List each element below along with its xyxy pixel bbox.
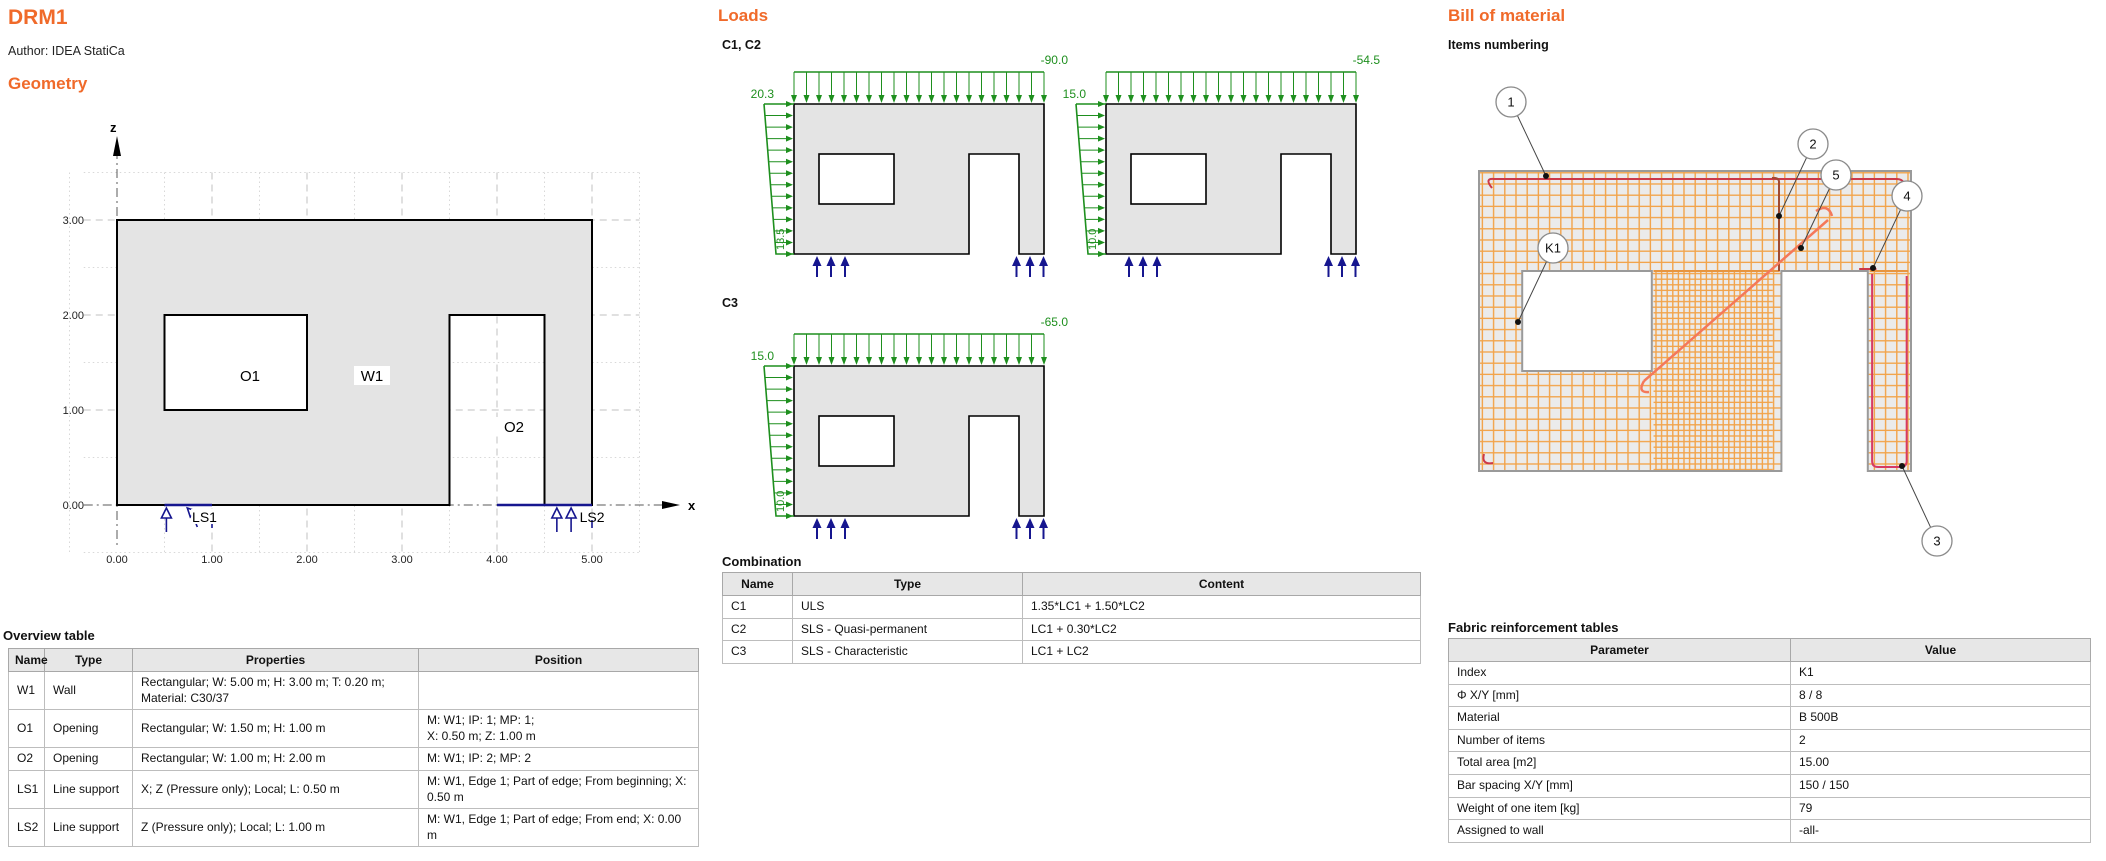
load-diagram-c1: -90.020.313.5: [736, 48, 1076, 284]
table-row: IndexK1: [1449, 662, 2091, 685]
opening1-label: O1: [240, 368, 260, 385]
table-cell: ULS: [793, 596, 1023, 619]
table-cell: B 500B: [1791, 707, 2091, 730]
opening-o1: [819, 416, 894, 466]
x-tick-label: 4.00: [486, 554, 507, 566]
table-cell: Total area [m2]: [1449, 752, 1791, 775]
items-numbering-diagram: 1254K13: [1448, 60, 2103, 610]
table-cell: Wall: [45, 672, 133, 710]
callout-label: 4: [1903, 189, 1910, 204]
table-cell: Φ X/Y [mm]: [1449, 684, 1791, 707]
table-cell: Index: [1449, 662, 1791, 685]
load-diagram-c2: -54.515.010.0: [1048, 48, 1388, 284]
table-cell: 79: [1791, 797, 2091, 820]
z-tick-label: 1.00: [63, 405, 84, 417]
callout-label: 3: [1933, 534, 1940, 549]
x-tick-label: 5.00: [581, 554, 602, 566]
table-cell: 8 / 8: [1791, 684, 2091, 707]
table-row: Φ X/Y [mm]8 / 8: [1449, 684, 2091, 707]
x-tick-label: 0.00: [106, 554, 127, 566]
table-row: W1WallRectangular; W: 5.00 m; H: 3.00 m;…: [9, 672, 699, 710]
support-reactions: [813, 518, 1049, 539]
callout-target-dot: [1776, 213, 1782, 219]
x-axis-arrow: [662, 501, 680, 509]
column-header: Type: [793, 573, 1023, 596]
table-cell: SLS - Characteristic: [793, 641, 1023, 664]
section-title-geometry: Geometry: [8, 74, 87, 94]
column-header: Parameter: [1449, 639, 1791, 662]
z-tick-label: 3.00: [63, 215, 84, 227]
overview-table-title: Overview table: [3, 628, 95, 643]
callout-label: 2: [1809, 137, 1816, 152]
z-axis-arrow: [113, 136, 121, 156]
table-row: C3SLS - CharacteristicLC1 + LC2: [723, 641, 1421, 664]
callout-label: K1: [1545, 241, 1561, 256]
table-row: Total area [m2]15.00: [1449, 752, 2091, 775]
table-cell: Line support: [45, 770, 133, 808]
table-cell: Weight of one item [kg]: [1449, 797, 1791, 820]
table-row: C1ULS1.35*LC1 + 1.50*LC2: [723, 596, 1421, 619]
load-diagram-c3: -65.015.010.0: [736, 310, 1076, 546]
table-cell: Assigned to wall: [1449, 820, 1791, 843]
load-value-top: -65.0: [1041, 315, 1069, 329]
fabric-mesh-overlap: [1654, 272, 1773, 470]
geometry-diagram: zx0.001.002.003.000.001.002.003.004.005.…: [42, 104, 702, 584]
overview-table: NameTypePropertiesPositionW1WallRectangu…: [8, 648, 699, 847]
x-tick-label: 1.00: [201, 554, 222, 566]
table-row: C2SLS - Quasi-permanentLC1 + 0.30*LC2: [723, 618, 1421, 641]
callout-target-dot: [1899, 463, 1905, 469]
load-value-side-top: 15.0: [1063, 87, 1087, 101]
table-cell: [419, 672, 699, 710]
table-row: MaterialB 500B: [1449, 707, 2091, 730]
opening-o1: [1131, 154, 1206, 204]
load-value-side-top: 20.3: [751, 87, 775, 101]
table-cell: X; Z (Pressure only); Local; L: 0.50 m: [133, 770, 419, 808]
section-title-bom: Bill of material: [1448, 6, 1565, 26]
combination-table: NameTypeContentC1ULS1.35*LC1 + 1.50*LC2C…: [722, 572, 1421, 664]
table-cell: Rectangular; W: 1.00 m; H: 2.00 m: [133, 748, 419, 771]
table-cell: C1: [723, 596, 793, 619]
table-row: LS1Line supportX; Z (Pressure only); Loc…: [9, 770, 699, 808]
table-cell: M: W1; IP: 1; MP: 1; X: 0.50 m; Z: 1.00 …: [419, 710, 699, 748]
callout-label: 1: [1507, 95, 1514, 110]
column-header: Content: [1023, 573, 1421, 596]
callout-label: 5: [1832, 168, 1839, 183]
opening-o1: [165, 315, 308, 410]
load-value-side-bottom: 10.0: [1087, 229, 1099, 250]
support2-label: LS2: [580, 509, 605, 525]
table-cell: LS2: [9, 809, 45, 847]
table-row: Assigned to wall-all-: [1449, 820, 2091, 843]
fabric-table-title: Fabric reinforcement tables: [1448, 620, 1619, 635]
table-cell: O1: [9, 710, 45, 748]
column-header: Name: [9, 649, 45, 672]
table-row: Bar spacing X/Y [mm]150 / 150: [1449, 774, 2091, 797]
table-cell: Rectangular; W: 5.00 m; H: 3.00 m; T: 0.…: [133, 672, 419, 710]
table-cell: M: W1, Edge 1; Part of edge; From beginn…: [419, 770, 699, 808]
table-cell: Number of items: [1449, 729, 1791, 752]
x-axis-label: x: [688, 498, 696, 513]
table-cell: Line support: [45, 809, 133, 847]
callout-target-dot: [1798, 245, 1804, 251]
table-row: Number of items2: [1449, 729, 2091, 752]
line-supports: [161, 505, 592, 532]
support-reactions: [1125, 256, 1361, 277]
author-line: Author: IDEA StatiCa: [8, 44, 125, 58]
callout-target-dot: [1870, 265, 1876, 271]
callout-leader: [1902, 466, 1931, 527]
x-tick-label: 3.00: [391, 554, 412, 566]
table-row: Weight of one item [kg]79: [1449, 797, 2091, 820]
callout-target-dot: [1543, 173, 1549, 179]
table-cell: Bar spacing X/Y [mm]: [1449, 774, 1791, 797]
load-group-c3-label: C3: [722, 296, 738, 310]
table-cell: K1: [1791, 662, 2091, 685]
table-cell: W1: [9, 672, 45, 710]
table-cell: C2: [723, 618, 793, 641]
z-axis-label: z: [110, 120, 117, 135]
load-value-side-bottom: 10.0: [775, 491, 787, 512]
opening2-label: O2: [504, 419, 524, 436]
table-cell: Z (Pressure only); Local; L: 1.00 m: [133, 809, 419, 847]
fabric-reinforcement-table: ParameterValueIndexK1Φ X/Y [mm]8 / 8Mate…: [1448, 638, 2091, 843]
load-value-top: -54.5: [1353, 53, 1381, 67]
table-cell: C3: [723, 641, 793, 664]
load-value-side-top: 15.0: [751, 349, 775, 363]
column-header: Value: [1791, 639, 2091, 662]
support1-label: LS1: [192, 509, 217, 525]
opening-o1: [819, 154, 894, 204]
items-numbering-label: Items numbering: [1448, 38, 1549, 52]
callout-leader: [1517, 116, 1546, 176]
page-title: DRM1: [8, 6, 68, 30]
table-row: O2OpeningRectangular; W: 1.00 m; H: 2.00…: [9, 748, 699, 771]
z-tick-label: 0.00: [63, 500, 84, 512]
table-cell: Rectangular; W: 1.50 m; H: 1.00 m: [133, 710, 419, 748]
table-cell: O2: [9, 748, 45, 771]
load-value-side-bottom: 13.5: [775, 229, 787, 250]
column-header: Name: [723, 573, 793, 596]
table-cell: M: W1; IP: 2; MP: 2: [419, 748, 699, 771]
x-tick-label: 2.00: [296, 554, 317, 566]
z-tick-label: 2.00: [63, 310, 84, 322]
column-header: Type: [45, 649, 133, 672]
table-cell: Opening: [45, 710, 133, 748]
table-cell: Opening: [45, 748, 133, 771]
table-cell: LC1 + LC2: [1023, 641, 1421, 664]
table-cell: 150 / 150: [1791, 774, 2091, 797]
table-cell: -all-: [1791, 820, 2091, 843]
combination-table-title: Combination: [722, 554, 801, 569]
table-cell: 1.35*LC1 + 1.50*LC2: [1023, 596, 1421, 619]
column-header: Position: [419, 649, 699, 672]
table-cell: LS1: [9, 770, 45, 808]
table-cell: LC1 + 0.30*LC2: [1023, 618, 1421, 641]
table-row: O1OpeningRectangular; W: 1.50 m; H: 1.00…: [9, 710, 699, 748]
table-cell: Material: [1449, 707, 1791, 730]
table-cell: 2: [1791, 729, 2091, 752]
column-header: Properties: [133, 649, 419, 672]
section-title-loads: Loads: [718, 6, 768, 26]
table-cell: 15.00: [1791, 752, 2091, 775]
wall-label: W1: [361, 368, 384, 385]
table-row: LS2Line supportZ (Pressure only); Local;…: [9, 809, 699, 847]
table-cell: M: W1, Edge 1; Part of edge; From end; X…: [419, 809, 699, 847]
support-reactions: [813, 256, 1049, 277]
callout-target-dot: [1515, 319, 1521, 325]
table-cell: SLS - Quasi-permanent: [793, 618, 1023, 641]
